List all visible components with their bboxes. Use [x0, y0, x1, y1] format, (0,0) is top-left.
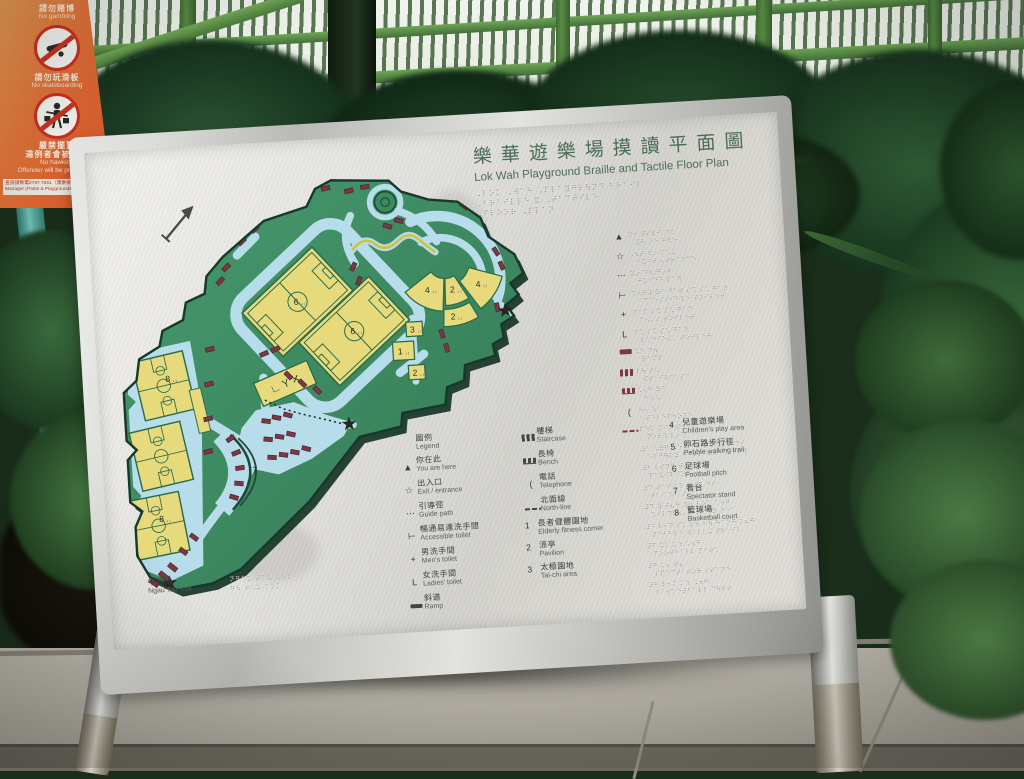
ramp-icon — [620, 349, 632, 354]
ramp-icon — [410, 603, 422, 608]
legend-item-icon: ☆ — [400, 479, 418, 499]
map-label-8: 8 — [165, 374, 171, 384]
braille-row-icon — [618, 367, 637, 384]
legend-item: ⋯引導徑Guide path — [401, 496, 522, 522]
bench-block — [264, 437, 273, 442]
exit-icon: ☆ — [405, 485, 414, 495]
map-label-4: 4 — [425, 285, 431, 295]
legend-item-icon — [520, 450, 538, 470]
title-block: 樂華遊樂場摸讀平面圖 Lok Wah Playground Braille an… — [472, 124, 776, 220]
mens-icon: + — [410, 554, 416, 564]
prohibition-text-zh: 請勿玩滑板 — [0, 73, 114, 82]
legend-item-icon — [407, 594, 425, 614]
legend-column-3: 4兒童遊樂場Children's play area5卵石路步行徑Pebble … — [669, 412, 795, 529]
legend-item-icon: + — [404, 548, 422, 568]
bench-block — [446, 192, 456, 200]
staircase-icon — [521, 434, 535, 442]
map-label-braille: ⠰⠆ — [431, 290, 439, 295]
map-label-braille: ⠰⠆ — [456, 317, 464, 322]
legend-item-text: 你在此You are here — [416, 450, 520, 475]
prohibition-text-en: No skateboarding — [0, 82, 114, 90]
telephone-icon: ( — [529, 479, 533, 489]
accessible-icon: ⊢ — [408, 531, 416, 541]
legend-item-number: 6 — [671, 462, 685, 481]
north-line-icon — [524, 508, 540, 511]
legend-item-number: 8 — [674, 506, 688, 525]
braille-row-icon: L — [615, 328, 634, 345]
map-label-braille: ⠰⠆ — [482, 284, 490, 289]
bench-block — [235, 465, 244, 470]
map-label-braille: ⠰⠆ — [300, 302, 308, 307]
braille-row-icon: ☆ — [611, 250, 630, 267]
legend-item-text: 籃球場Basketball court — [687, 500, 795, 524]
legend-item-text: 電話Telephone — [539, 465, 671, 492]
map-label-1: 1 — [398, 346, 404, 356]
map-label-6: 6 — [350, 326, 356, 336]
mens-icon: + — [621, 310, 627, 325]
legend-item-number: 3 — [527, 563, 541, 582]
map-label-2: 2 — [450, 284, 456, 294]
map-label-braille: ⠰⠆ — [171, 379, 179, 384]
legend-item: 3太極園地Tai-chi area — [527, 555, 676, 582]
map-label-braille: ⠰⠆ — [356, 331, 364, 336]
legend-item-text: 涼亭Pavilion — [539, 533, 675, 559]
legend-item-text: 引導徑Guide path — [418, 496, 522, 521]
bench-block — [275, 434, 284, 439]
braille-row-icon — [619, 387, 638, 404]
map-label-2: 2 — [412, 368, 418, 378]
legend-item: 5卵石路步行徑Pebble walking trail — [670, 434, 791, 459]
bench-block — [268, 455, 277, 460]
legend-item: 斜道Ramp — [407, 588, 528, 614]
legend-item-icon: ▲ — [399, 456, 417, 476]
exit-braille: ⠝⠛⠁⠥ ⠞⠁⠥ ⠅⠕⠅⠛⠳ ⠞⠡⠥ ⠅⠕⠅ — [229, 572, 294, 594]
you-are-here-icon: ▲ — [403, 462, 412, 473]
legend-item-text: 看台Spectator stand — [686, 478, 794, 502]
tactile-map-board: ∟ Y ✕ — [68, 95, 824, 695]
map-label-braille: ⠰⠆ — [404, 352, 412, 357]
you-are-here-icon: ▲ — [614, 232, 624, 248]
legend-item: 6足球場Football pitch — [671, 456, 792, 481]
legend-item-number: 7 — [673, 484, 687, 503]
legend-item-text: 斜道Ramp — [424, 588, 528, 613]
printed-legend: 圖例 Legend ▲你在此You are here☆出入口Exit / ent… — [397, 412, 800, 631]
legend-item: 8籃球場Basketball court — [674, 500, 795, 525]
legend-item-number: 2 — [526, 541, 540, 560]
guide-path-icon: ⋯ — [406, 508, 416, 519]
foliage-blob — [855, 280, 1024, 440]
map-label-6: 6 — [293, 297, 299, 307]
legend-item: 7看台Spectator stand — [673, 478, 794, 503]
ladies-icon: L — [412, 577, 418, 587]
bench-block — [360, 184, 369, 189]
legend-item-text: 男洗手間Men's toilet — [421, 542, 525, 567]
legend-item-text: 長者健體園地Elderly fitness corner — [538, 511, 674, 537]
map-label-braille: ⠰⠆ — [418, 373, 426, 378]
legend-item: L女洗手間Ladies' toilet — [405, 565, 526, 591]
legend-column-1: 圖例 Legend ▲你在此You are here☆出入口Exit / ent… — [397, 428, 528, 618]
legend-item-number: 1 — [525, 519, 539, 538]
braille-row-icon — [617, 348, 636, 365]
no-hawker-icon — [34, 93, 80, 139]
accessible-icon: ⊢ — [618, 291, 627, 306]
legend-item-icon: L — [405, 571, 423, 591]
bench-block — [234, 481, 243, 486]
steel-plate: ∟ Y ✕ — [84, 112, 806, 650]
legend-item: ⊢暢通易達洗手間Accessible toilet — [403, 519, 524, 545]
map-label-8: 8 — [159, 514, 165, 524]
legend-column-2: 樓梯Staircase長椅Bench(電話Telephone北面線North-l… — [519, 419, 676, 585]
legend-item-text: 長椅Bench — [537, 442, 669, 469]
legend-item-icon — [523, 496, 541, 516]
map-label-2: 2 — [450, 311, 456, 321]
legend-item-icon — [519, 427, 537, 447]
map-label-3: 3 — [410, 324, 416, 334]
bench-block — [262, 419, 271, 424]
legend-item: +男洗手間Men's toilet — [404, 542, 525, 568]
map-label-7: 7 — [252, 465, 258, 475]
exit-icon: ☆ — [616, 252, 625, 267]
map-label-braille: ⠰⠆ — [456, 290, 464, 295]
legend-item-number: 4 — [669, 418, 683, 437]
legend-item-text: 暢通易達洗手間Accessible toilet — [420, 519, 524, 544]
legend-item-text: 女洗手間Ladies' toilet — [422, 565, 526, 590]
bench-icon — [621, 388, 634, 395]
map-label-4: 4 — [475, 279, 481, 289]
braille-row-icon: ⋯ — [612, 270, 631, 287]
ladies-icon: L — [622, 330, 628, 345]
legend-item-text: 北面線North-line — [540, 488, 672, 515]
exit-label: 牛頭角 Ngau Tau Kok — [147, 575, 192, 596]
legend-item-text: 出入口Exit / entrance — [417, 473, 521, 498]
bench-icon — [523, 458, 536, 465]
map-label-braille: ⠰⠆ — [416, 330, 424, 335]
braille-row-icon: ⊢ — [613, 289, 632, 306]
legend-item: ☆出入口Exit / entrance — [400, 473, 521, 499]
staircase-icon — [620, 368, 634, 376]
legend-item-icon: ⋯ — [401, 502, 419, 522]
braille-row-icon: + — [614, 309, 633, 326]
legend-item-icon: ( — [522, 473, 540, 493]
braille-row-icon: ▲ — [610, 231, 629, 248]
legend-item-text: 卵石路步行徑Pebble walking trail — [683, 434, 791, 458]
legend-item-number: 5 — [670, 440, 684, 459]
legend-item-icon: ⊢ — [403, 525, 421, 545]
map-label-braille: ⠰⠆ — [165, 519, 173, 524]
legend-item-text: 太極園地Tai-chi area — [540, 555, 676, 581]
no-skateboard-icon — [34, 25, 80, 71]
map-label-braille: ⠰⠆ — [258, 470, 266, 475]
north-arrow-icon — [160, 206, 196, 243]
legend-item-text: 足球場Football pitch — [684, 456, 792, 480]
guide-path-icon: ⋯ — [616, 271, 626, 287]
bench-block — [279, 452, 288, 457]
legend-item: ▲你在此You are here — [399, 450, 520, 476]
